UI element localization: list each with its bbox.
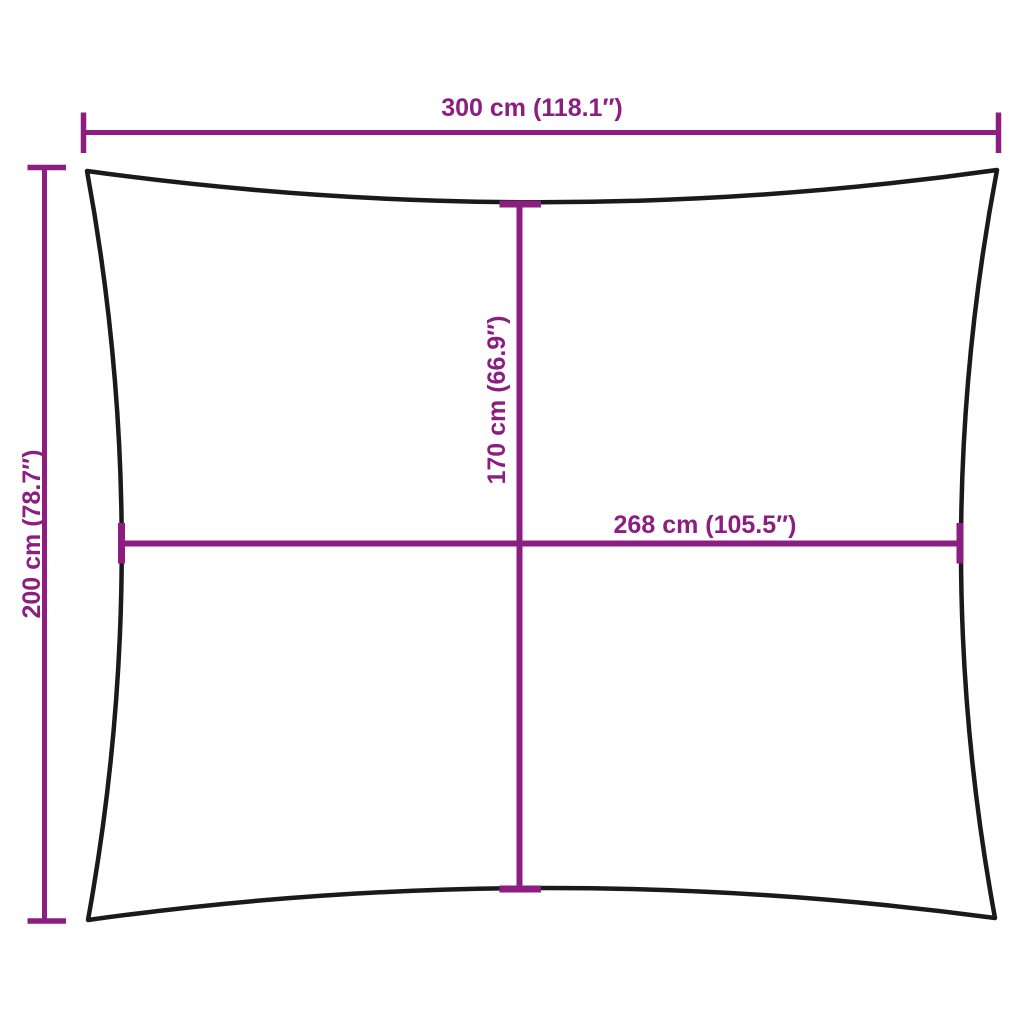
dimension-diagram: 300 cm (118.1″) 200 cm (78.7″) 170 cm (6… (0, 0, 1024, 1024)
dimension-label-left-height: 200 cm (78.7″) (18, 449, 46, 618)
dimension-left-height: 200 cm (78.7″) (18, 167, 66, 922)
dimension-label-top-width: 300 cm (118.1″) (441, 94, 623, 122)
dimension-label-inner-height: 170 cm (66.9″) (483, 315, 511, 484)
dimension-top-width: 300 cm (118.1″) (83, 94, 999, 153)
dimension-label-inner-width: 268 cm (105.5″) (614, 511, 797, 539)
shade-sail-diagram-canvas: 300 cm (118.1″) 200 cm (78.7″) 170 cm (6… (0, 0, 1024, 1024)
